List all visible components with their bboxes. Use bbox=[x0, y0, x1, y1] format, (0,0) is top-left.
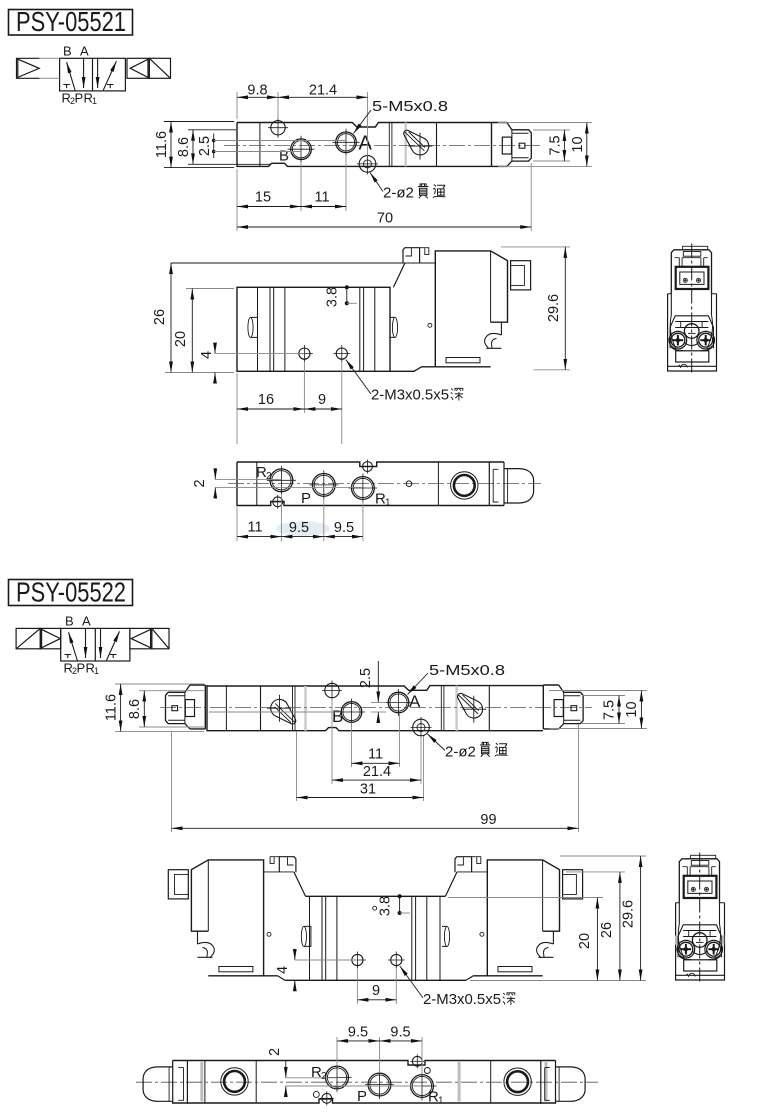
svg-text:P: P bbox=[77, 661, 86, 676]
svg-text:11: 11 bbox=[314, 190, 329, 206]
svg-text:21.4: 21.4 bbox=[309, 83, 337, 99]
svg-text:B: B bbox=[279, 148, 289, 165]
svg-text:9.5: 9.5 bbox=[289, 520, 309, 536]
svg-text:15: 15 bbox=[255, 190, 271, 206]
svg-text:A: A bbox=[80, 44, 89, 59]
svg-text:5-M5x0.8: 5-M5x0.8 bbox=[429, 662, 505, 679]
svg-text:1: 1 bbox=[438, 1096, 444, 1107]
svg-text:7.5: 7.5 bbox=[602, 700, 618, 720]
svg-text:20: 20 bbox=[173, 331, 189, 347]
svg-text:2-ø2: 2-ø2 bbox=[383, 185, 414, 202]
svg-text:B: B bbox=[63, 44, 72, 59]
svg-text:7.5: 7.5 bbox=[548, 135, 564, 155]
svg-text:29.6: 29.6 bbox=[546, 294, 562, 322]
svg-text:A: A bbox=[359, 133, 373, 155]
svg-text:P: P bbox=[75, 91, 84, 106]
svg-text:16: 16 bbox=[258, 392, 274, 408]
svg-text:9.5: 9.5 bbox=[334, 520, 354, 536]
svg-text:PSY-05522: PSY-05522 bbox=[16, 577, 126, 608]
svg-text:1: 1 bbox=[92, 96, 97, 106]
svg-text:26: 26 bbox=[599, 922, 615, 938]
svg-text:11: 11 bbox=[247, 520, 262, 536]
svg-text:4: 4 bbox=[199, 351, 215, 359]
svg-text:10: 10 bbox=[624, 701, 640, 717]
svg-text:5-M5x0.8: 5-M5x0.8 bbox=[372, 98, 448, 115]
svg-text:9.5: 9.5 bbox=[390, 1025, 410, 1041]
svg-text:P: P bbox=[357, 1088, 367, 1105]
svg-text:B: B bbox=[65, 614, 74, 629]
svg-text:2: 2 bbox=[321, 1071, 327, 1082]
svg-text:PSY-05521: PSY-05521 bbox=[16, 6, 126, 37]
svg-text:2: 2 bbox=[267, 1048, 283, 1056]
svg-text:10: 10 bbox=[570, 136, 586, 152]
svg-text:9: 9 bbox=[318, 392, 326, 408]
svg-text:A: A bbox=[409, 692, 421, 711]
svg-text:9.8: 9.8 bbox=[247, 83, 267, 99]
svg-text:2-M3x0.5x5: 2-M3x0.5x5 bbox=[371, 387, 449, 404]
svg-text:20: 20 bbox=[577, 933, 593, 949]
svg-text:2.5: 2.5 bbox=[197, 136, 213, 156]
svg-text:8.6: 8.6 bbox=[176, 137, 192, 157]
svg-text:P: P bbox=[301, 490, 311, 507]
svg-text:11: 11 bbox=[368, 747, 383, 763]
svg-text:3.8: 3.8 bbox=[325, 287, 341, 307]
svg-text:70: 70 bbox=[377, 211, 393, 227]
svg-text:1: 1 bbox=[385, 498, 391, 509]
svg-text:2-ø2: 2-ø2 bbox=[445, 744, 476, 761]
svg-text:4: 4 bbox=[275, 966, 291, 974]
svg-text:9: 9 bbox=[372, 983, 380, 999]
svg-text:9.5: 9.5 bbox=[348, 1025, 368, 1041]
svg-text:29.6: 29.6 bbox=[621, 900, 637, 928]
svg-text:11.6: 11.6 bbox=[154, 131, 170, 158]
svg-text:3.8: 3.8 bbox=[378, 896, 394, 916]
svg-text:2: 2 bbox=[266, 471, 272, 482]
svg-text:2.5: 2.5 bbox=[358, 668, 374, 688]
svg-text:26: 26 bbox=[152, 309, 168, 325]
svg-text:1: 1 bbox=[94, 666, 99, 676]
svg-text:2-M3x0.5x5: 2-M3x0.5x5 bbox=[423, 991, 501, 1008]
svg-text:99: 99 bbox=[480, 812, 496, 828]
svg-text:31: 31 bbox=[360, 782, 376, 798]
svg-text:B: B bbox=[332, 707, 343, 726]
svg-text:8.6: 8.6 bbox=[127, 699, 143, 719]
svg-text:21.4: 21.4 bbox=[363, 764, 391, 780]
svg-text:A: A bbox=[82, 614, 91, 629]
svg-text:2: 2 bbox=[192, 479, 208, 487]
svg-text:11.6: 11.6 bbox=[104, 694, 120, 721]
